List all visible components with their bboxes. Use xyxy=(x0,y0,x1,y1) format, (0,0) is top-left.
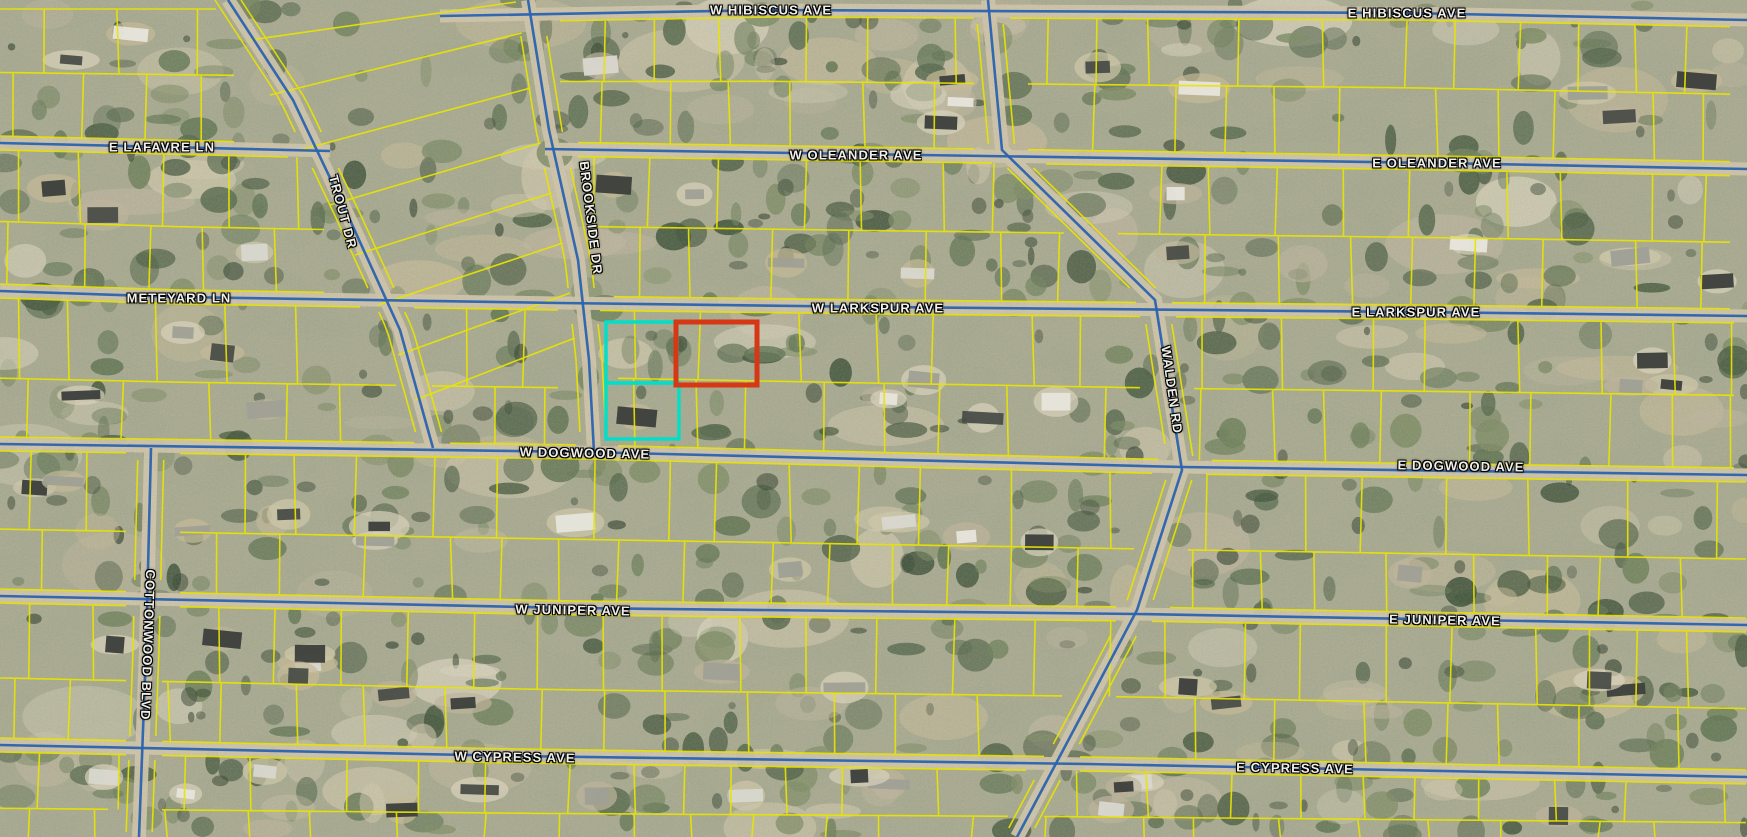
parcel-highlight-overlay xyxy=(0,0,1747,837)
highlight-parcel-teal-upper xyxy=(606,322,677,383)
highlight-parcel-red xyxy=(676,322,757,385)
highlight-parcel-teal-lower xyxy=(606,383,679,439)
aerial-parcel-map[interactable]: W HIBISCUS AVE E HIBISCUS AVE E LAFAVRE … xyxy=(0,0,1747,837)
